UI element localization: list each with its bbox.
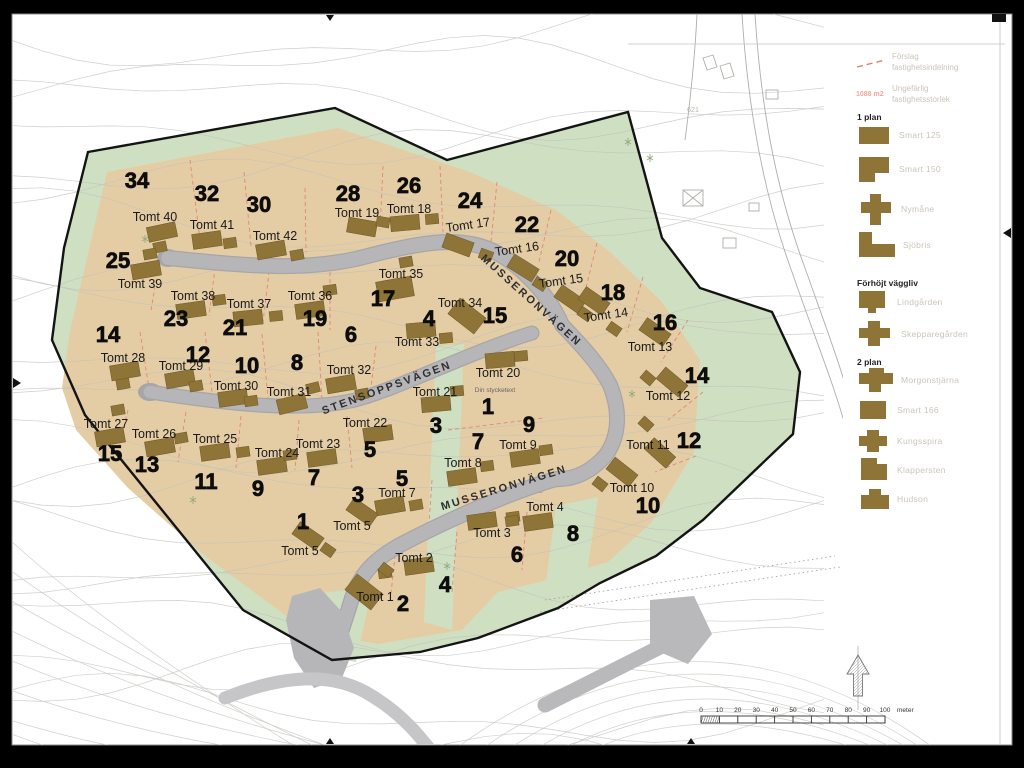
morgonstjarna-icon xyxy=(857,366,895,393)
scale-tick-label: 40 xyxy=(771,707,779,714)
plot-number: 12 xyxy=(677,428,701,453)
plot-number: 30 xyxy=(247,192,271,217)
plot-number: 3 xyxy=(430,413,442,438)
scale-tick-label: 90 xyxy=(863,707,871,714)
scale-tick-label: 30 xyxy=(753,707,761,714)
legend-item-hudson: Hudson xyxy=(857,487,928,511)
scale-tick-label: 10 xyxy=(716,707,724,714)
plot-number: 5 xyxy=(364,437,376,462)
garage-footprint xyxy=(514,350,528,361)
scale-tick-label: 70 xyxy=(826,707,834,714)
tomt-label: Tomt 5 xyxy=(281,544,319,558)
tomt-label: Tomt 31 xyxy=(267,385,312,399)
tomt-label: Tomt 42 xyxy=(253,229,298,243)
garage-footprint xyxy=(480,460,494,472)
tomt-label: Tomt 23 xyxy=(296,437,341,451)
legend-size-line1: Ungefärlig xyxy=(892,84,950,95)
garage-footprint xyxy=(269,310,283,321)
tomt-label: Tomt 26 xyxy=(132,427,177,441)
sjobris-icon xyxy=(857,230,897,260)
tomt-label: Tomt 21 xyxy=(413,385,458,399)
plot-number: 34 xyxy=(125,168,150,193)
tomt-label: Tomt 33 xyxy=(395,335,440,349)
plot-number: 12 xyxy=(186,342,210,367)
house-footprint xyxy=(390,214,420,231)
scale-unit-label: meter xyxy=(897,707,914,714)
plot-number: 3 xyxy=(352,482,364,507)
garage-footprint xyxy=(223,237,237,249)
plot-number: 16 xyxy=(653,310,677,335)
scale-tick-label: 100 xyxy=(880,707,891,714)
legend-item-smart125: Smart 125 xyxy=(857,124,941,146)
plot-number: 14 xyxy=(685,363,710,388)
tomt-label: Tomt 25 xyxy=(193,432,238,446)
tomt-label: Tomt 2 xyxy=(395,551,433,565)
plot-number: 1 xyxy=(482,394,494,419)
plot-number: 6 xyxy=(345,322,357,347)
legend-size-value: 1088 m2 xyxy=(856,91,886,98)
legend-item-size: 1088 m2 Ungefärlig fastighetsstorlek xyxy=(856,84,950,106)
smart-166-icon xyxy=(857,398,891,422)
legend-proposal-line2: fastighetsindelning xyxy=(892,63,958,74)
garage-footprint xyxy=(111,404,126,416)
legend-label: Lindgården xyxy=(897,297,943,307)
plot-number: 1 xyxy=(297,509,309,534)
garage-footprint xyxy=(244,395,258,407)
tomt-label: Tomt 30 xyxy=(214,379,259,393)
garage-footprint xyxy=(439,332,453,343)
klappersten-icon xyxy=(857,456,891,483)
tomt-label: Tomt 5 xyxy=(333,519,371,533)
tomt-label: Tomt 12 xyxy=(646,389,691,403)
garage-footprint xyxy=(143,248,158,260)
plot-number: 8 xyxy=(291,350,303,375)
tomt-label: Tomt 38 xyxy=(171,289,216,303)
legend-proposal-line1: Förslag xyxy=(892,52,958,63)
scale-tick-label: 80 xyxy=(845,707,853,714)
tomt-label: Tomt 35 xyxy=(379,267,424,281)
plot-number: 28 xyxy=(336,181,360,206)
garage-footprint xyxy=(290,249,305,261)
legend-item-sjobris: Sjöbris xyxy=(857,230,931,260)
tomt-label: Tomt 27 xyxy=(84,417,129,431)
plot-number: 10 xyxy=(235,353,259,378)
plot-number: 6 xyxy=(511,542,523,567)
tomt-label: Tomt 18 xyxy=(387,202,432,216)
elevation-label: 621 xyxy=(687,107,699,114)
plot-number: 7 xyxy=(472,429,484,454)
tomt-label: Tomt 1 xyxy=(356,590,394,604)
plot-number: 14 xyxy=(96,322,121,347)
proposal-line-swatch xyxy=(856,56,886,70)
plot-number: 9 xyxy=(252,476,264,501)
tomt-label: Tomt 28 xyxy=(101,351,146,365)
tomt-label: Tomt 37 xyxy=(227,297,272,311)
plot-number: 26 xyxy=(397,173,421,198)
legend-group2-title: Förhöjt väggliv xyxy=(857,278,918,288)
legend-label: Smart 150 xyxy=(899,164,941,174)
legend-item-kungsspira: Kungsspira xyxy=(857,428,943,454)
plot-number: 32 xyxy=(195,181,219,206)
scale-tick-label: 60 xyxy=(808,707,816,714)
tomt-label: Tomt 34 xyxy=(438,296,483,310)
tomt-label: Tomt 40 xyxy=(133,210,178,224)
legend-item-nymane: Nymåne xyxy=(857,191,934,227)
tomt-label: Tomt 39 xyxy=(118,277,163,291)
tomt-label: Tomt 22 xyxy=(343,416,388,430)
legend-label: Smart 125 xyxy=(899,130,941,140)
plot-number: 22 xyxy=(515,212,539,237)
plot-number: 10 xyxy=(636,493,660,518)
plot-number: 4 xyxy=(439,572,452,597)
legend-label: Nymåne xyxy=(901,204,934,214)
legend-item-smart150: Smart 150 xyxy=(857,155,941,183)
legend-label: Skepparegården xyxy=(901,329,968,339)
garage-footprint xyxy=(116,378,131,390)
plot-number: 24 xyxy=(458,188,483,213)
garage-footprint xyxy=(409,499,424,511)
tomt-label: Tomt 24 xyxy=(255,446,300,460)
tomt-label: Tomt 13 xyxy=(628,340,673,354)
scale-tick-label: 0 xyxy=(699,707,703,714)
plot-number: 25 xyxy=(106,248,130,273)
plot-note: Din stycketext xyxy=(475,387,516,394)
plot-number: 19 xyxy=(303,306,327,331)
tomt-label: Tomt 41 xyxy=(190,218,235,232)
plot-number: 13 xyxy=(135,452,159,477)
legend-item-lindgarden: Lindgården xyxy=(857,289,943,315)
plot-number: 23 xyxy=(164,306,188,331)
nymane-icon xyxy=(857,191,895,227)
legend-label: Kungsspira xyxy=(897,436,943,446)
plot-number: 18 xyxy=(601,280,625,305)
tomt-label: Tomt 9 xyxy=(499,438,537,452)
smart-150-icon xyxy=(857,155,893,183)
tomt-label: Tomt 8 xyxy=(444,456,482,470)
plot-number: 20 xyxy=(555,246,579,271)
legend-size-line2: fastighetsstorlek xyxy=(892,95,950,106)
legend-label: Klappersten xyxy=(897,465,946,475)
scale-tick-label: 20 xyxy=(734,707,742,714)
plot-number: 4 xyxy=(423,306,436,331)
legend-label: Hudson xyxy=(897,494,928,504)
scale-tick-label: 50 xyxy=(789,707,797,714)
skepparegarden-icon xyxy=(857,319,895,348)
hudson-icon xyxy=(857,487,891,511)
tomt-label: Tomt 4 xyxy=(526,500,564,514)
legend-item-proposal: Förslag fastighetsindelning xyxy=(856,52,958,74)
garage-footprint xyxy=(189,380,204,392)
tomt-label: Tomt 20 xyxy=(476,366,521,380)
legend-group1-title: 1 plan xyxy=(857,112,882,122)
plot-number: 17 xyxy=(371,286,395,311)
plot-number: 11 xyxy=(194,469,217,494)
tomt-label: Tomt 32 xyxy=(327,363,372,377)
tomt-label: Tomt 36 xyxy=(288,289,333,303)
garage-footprint xyxy=(539,444,553,456)
plot-number: 15 xyxy=(98,441,122,466)
lindgarden-icon xyxy=(857,289,891,315)
legend-label: Morgonstjärna xyxy=(901,375,959,385)
tomt-label: Tomt 11 xyxy=(626,438,670,452)
plot-number: 2 xyxy=(397,591,409,616)
kungsspira-icon xyxy=(857,428,891,454)
legend-item-smart166: Smart 166 xyxy=(857,398,939,422)
plot-number: 9 xyxy=(523,412,535,437)
plot-number: 8 xyxy=(567,521,579,546)
plot-number: 15 xyxy=(483,303,507,328)
garage-footprint xyxy=(236,446,250,458)
legend-item-morgonstjarna: Morgonstjärna xyxy=(857,366,959,393)
plot-number: 5 xyxy=(396,466,408,491)
legend-item-skepparegarden: Skepparegården xyxy=(857,319,968,348)
plot-number: 21 xyxy=(223,315,247,340)
plot-number: 7 xyxy=(308,465,320,490)
legend-label: Sjöbris xyxy=(903,240,931,250)
tomt-label: Tomt 3 xyxy=(473,526,511,540)
smart-125-icon xyxy=(857,124,893,146)
legend-label: Smart 166 xyxy=(897,405,939,415)
plan-sheet: MUSSERONVÄGENSTENSOPPSVÄGENMUSSERONVÄGEN… xyxy=(0,0,1024,768)
legend-item-klappersten: Klappersten xyxy=(857,456,946,483)
tomt-label: Tomt 19 xyxy=(335,206,380,220)
